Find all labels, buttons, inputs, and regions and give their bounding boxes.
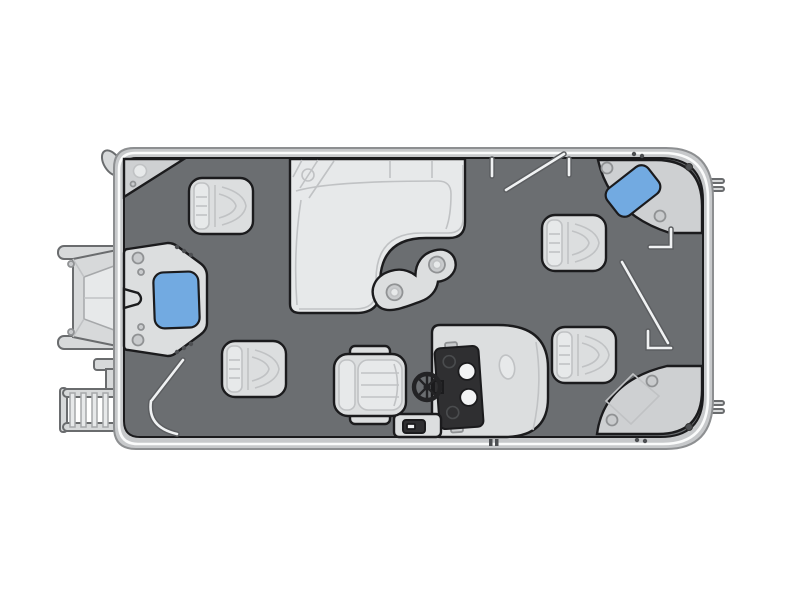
gauge-icon (460, 388, 478, 406)
fishing-chair-right-upper (542, 215, 606, 271)
gauge-icon (458, 362, 476, 380)
pontoon-floorplan-diagram (0, 0, 800, 600)
pontoon-floorplan-page (0, 0, 800, 600)
knob-icon (446, 406, 459, 419)
fishing-chair-right-lower (552, 327, 616, 383)
fishing-chair-top-left (189, 178, 253, 234)
fishing-chair-bottom-left (222, 341, 286, 397)
blue-pad-stern (153, 271, 200, 329)
console-step (394, 414, 441, 437)
helm-console (432, 325, 548, 437)
stern-gate-module (124, 243, 207, 356)
knob-icon (443, 355, 456, 368)
captain-chair (334, 346, 406, 424)
